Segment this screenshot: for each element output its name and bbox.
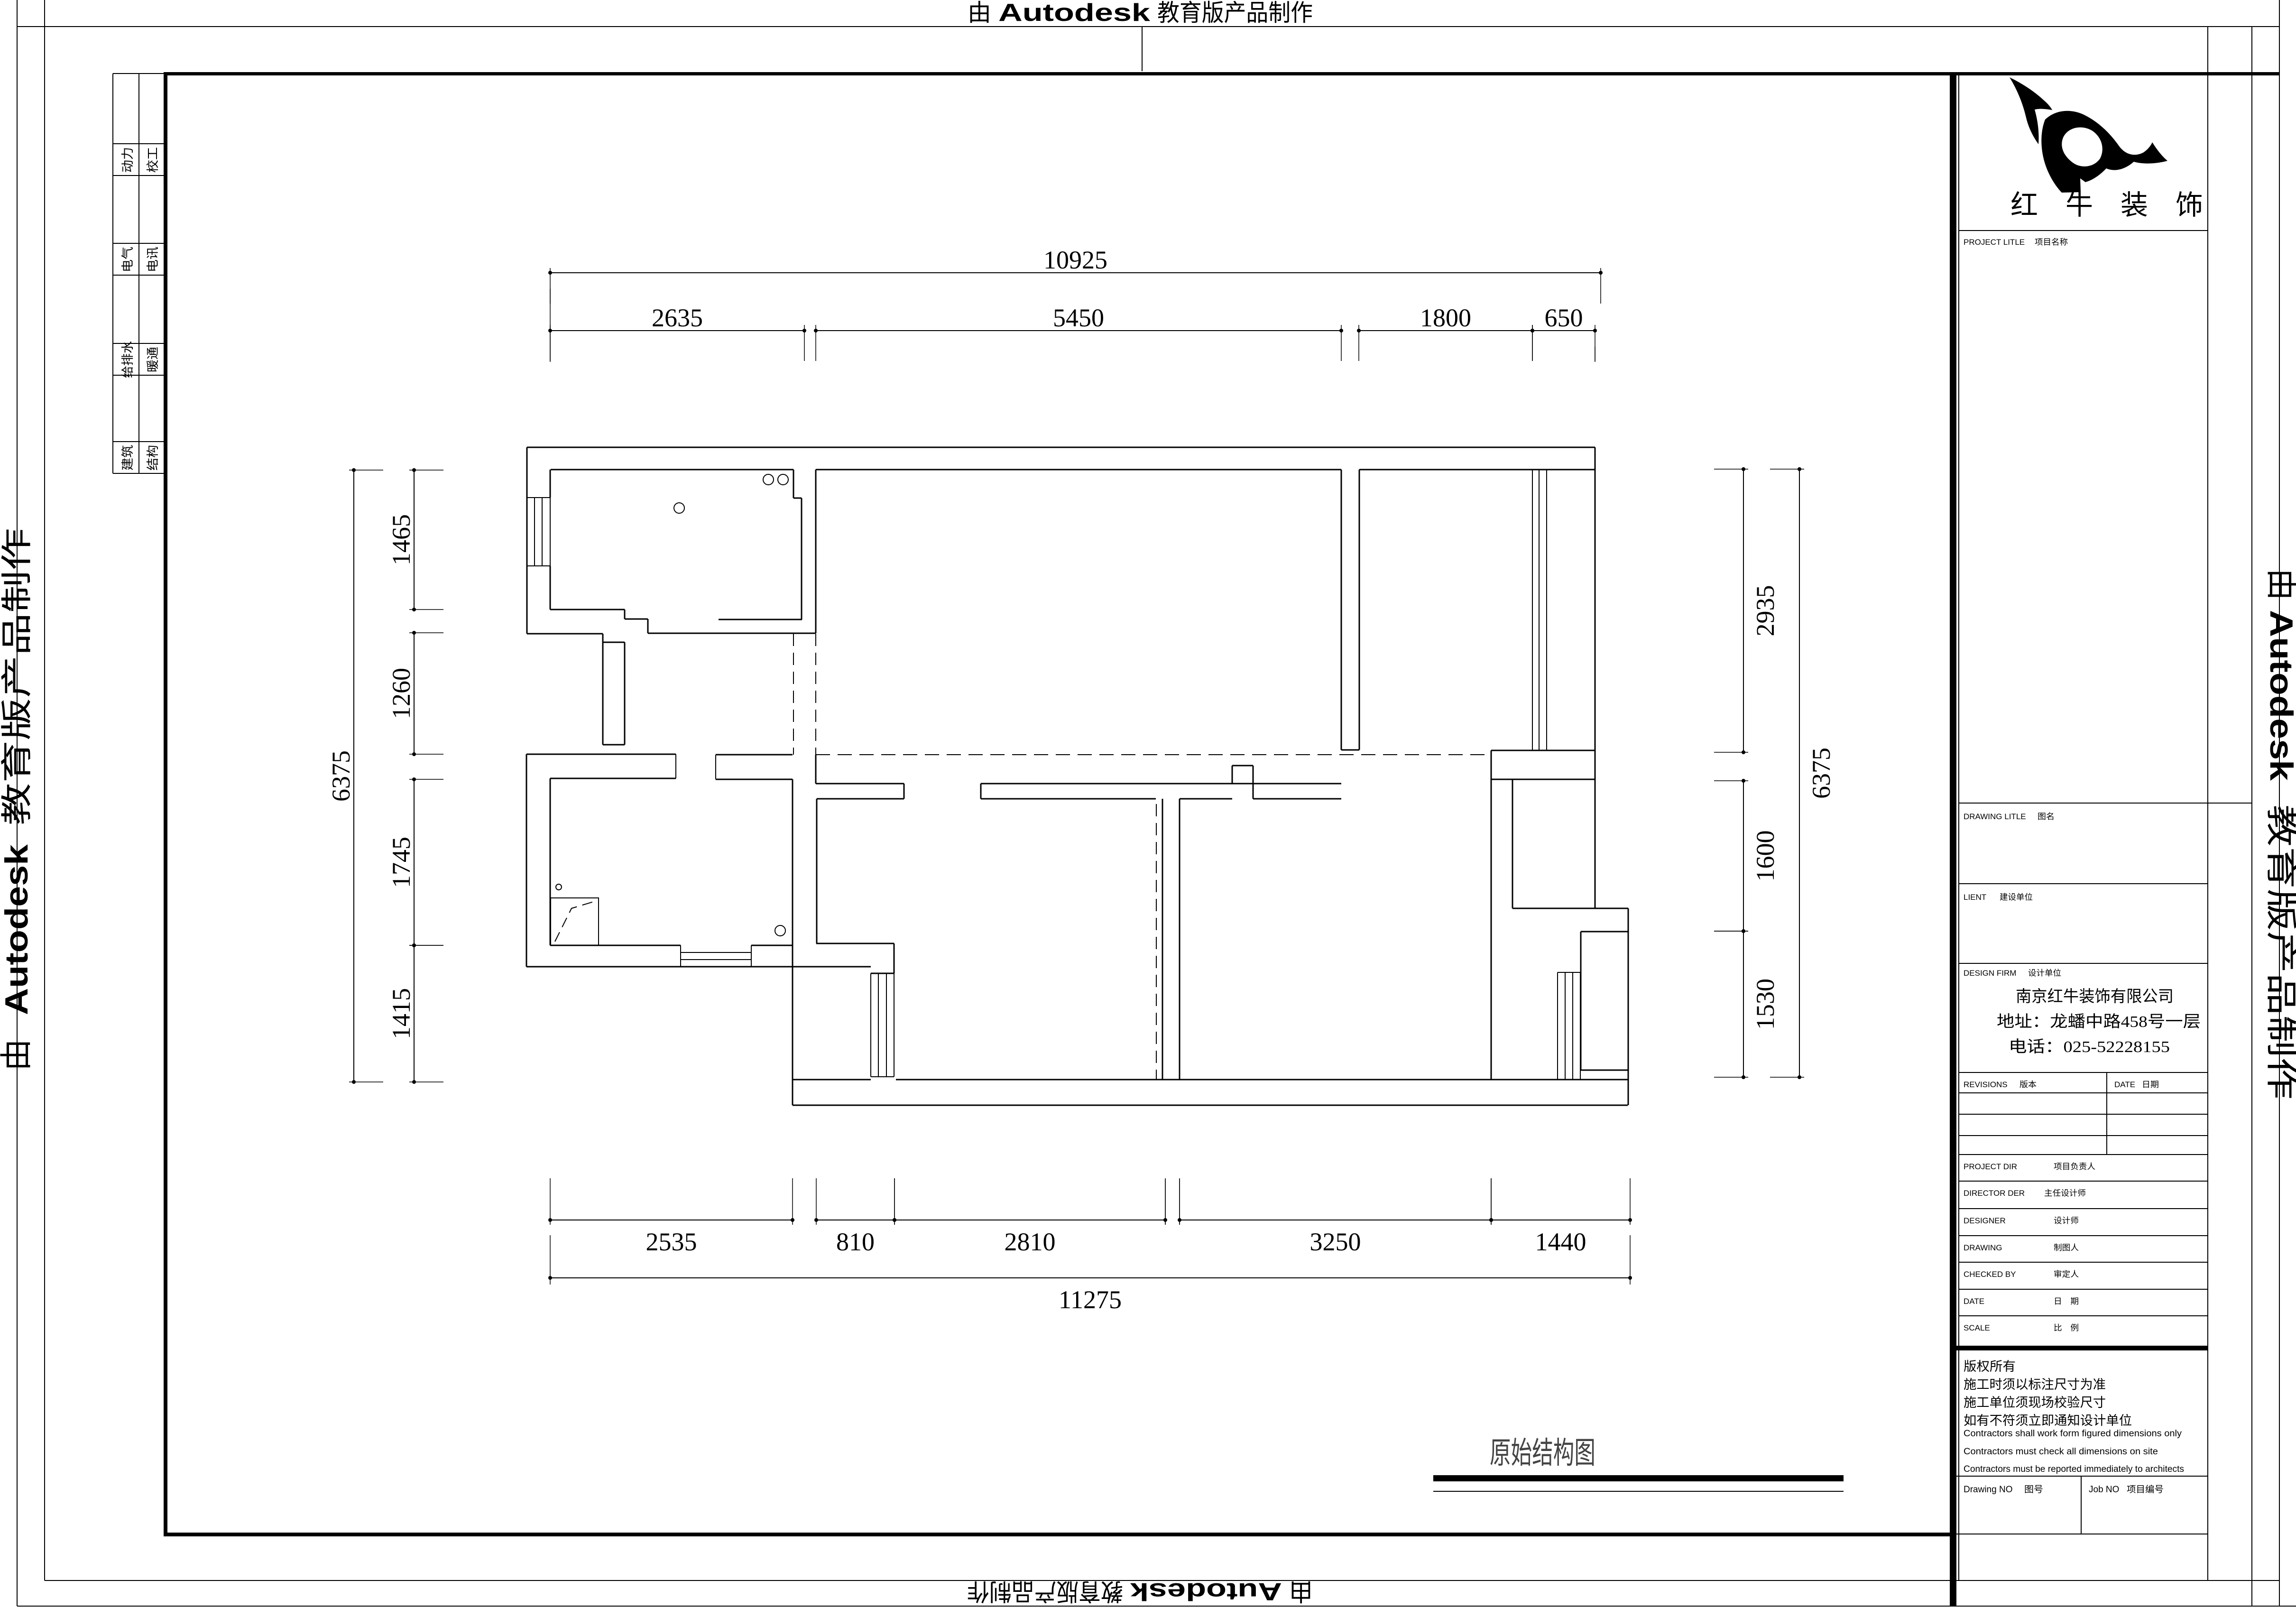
svg-text:图号: 图号 — [2024, 1485, 2043, 1495]
svg-text:电气: 电气 — [120, 247, 135, 272]
svg-text:项目编号: 项目编号 — [2127, 1484, 2164, 1495]
svg-text:设计单位: 设计单位 — [2028, 969, 2061, 978]
svg-text:校工: 校工 — [146, 147, 160, 173]
svg-text:2635: 2635 — [652, 304, 703, 332]
svg-text:Drawing NO: Drawing NO — [1964, 1485, 2012, 1495]
svg-text:CHECKED BY: CHECKED BY — [1964, 1270, 2016, 1279]
svg-text:1600: 1600 — [1751, 831, 1780, 882]
svg-text:10925: 10925 — [1043, 246, 1107, 274]
svg-text:3250: 3250 — [1310, 1228, 1361, 1256]
svg-text:Contractors must check all dim: Contractors must check all dimensions on… — [1964, 1447, 2158, 1457]
svg-text:版权所有: 版权所有 — [1964, 1359, 2016, 1374]
svg-text:Autodesk: Autodesk — [2263, 610, 2296, 781]
svg-text:DATE: DATE — [1964, 1297, 1984, 1306]
svg-text:红 牛 装 饰: 红 牛 装 饰 — [2010, 190, 2203, 221]
svg-text:1440: 1440 — [1535, 1228, 1586, 1256]
svg-text:DESIGNER: DESIGNER — [1964, 1216, 2006, 1225]
svg-text:6375: 6375 — [327, 750, 355, 802]
svg-text:主任设计师: 主任设计师 — [2044, 1189, 2086, 1198]
svg-text:1465: 1465 — [387, 514, 415, 565]
svg-text:如有不符须立即通知设计单位: 如有不符须立即通知设计单位 — [1964, 1414, 2132, 1428]
svg-text:Contractors must be reported i: Contractors must be reported immediately… — [1964, 1464, 2184, 1474]
svg-text:教育版产品制作: 教育版产品制作 — [1157, 0, 1313, 26]
svg-text:教育版产品制作: 教育版产品制作 — [0, 528, 34, 825]
svg-text:由: 由 — [968, 0, 991, 26]
svg-text:施工时须以标注尺寸为准: 施工时须以标注尺寸为准 — [1964, 1377, 2106, 1392]
svg-text:5450: 5450 — [1053, 304, 1104, 332]
svg-text:比 例: 比 例 — [2054, 1323, 2079, 1332]
svg-text:结构: 结构 — [146, 445, 160, 471]
svg-text:审定人: 审定人 — [2054, 1270, 2079, 1279]
svg-text:原始结构图: 原始结构图 — [1490, 1436, 1595, 1470]
svg-text:建设单位: 建设单位 — [2000, 893, 2033, 902]
svg-text:制图人: 制图人 — [2054, 1243, 2079, 1252]
svg-text:版本: 版本 — [2019, 1080, 2037, 1089]
svg-text:图名: 图名 — [2038, 812, 2055, 821]
svg-text:SCALE: SCALE — [1964, 1323, 1990, 1332]
svg-text:PROJECT DIR: PROJECT DIR — [1964, 1162, 2017, 1171]
svg-text:Contractors shall work form fi: Contractors shall work form figured dime… — [1964, 1429, 2182, 1439]
svg-text:1415: 1415 — [387, 988, 415, 1039]
svg-text:由: 由 — [0, 1039, 35, 1071]
svg-text:810: 810 — [836, 1228, 875, 1256]
svg-text:2535: 2535 — [646, 1228, 697, 1256]
svg-text:650: 650 — [1545, 304, 1583, 332]
svg-text:项目名称: 项目名称 — [2035, 238, 2068, 247]
svg-text:施工单位须现场校验尺寸: 施工单位须现场校验尺寸 — [1964, 1395, 2106, 1410]
svg-text:给排水: 给排水 — [120, 341, 135, 378]
svg-text:电讯: 电讯 — [146, 247, 160, 272]
svg-text:由: 由 — [1289, 1578, 1313, 1605]
svg-text:1800: 1800 — [1420, 304, 1471, 332]
svg-text:日期: 日期 — [2142, 1080, 2159, 1089]
svg-text:1260: 1260 — [387, 668, 415, 719]
svg-text:DATE: DATE — [2114, 1080, 2135, 1089]
svg-text:11275: 11275 — [1059, 1285, 1122, 1314]
svg-text:2935: 2935 — [1751, 585, 1780, 637]
svg-text:动力: 动力 — [120, 147, 135, 173]
svg-text:1745: 1745 — [387, 837, 415, 888]
svg-text:地址：龙蟠中路458号一层: 地址：龙蟠中路458号一层 — [1997, 1013, 2201, 1031]
svg-text:暖通: 暖通 — [146, 347, 160, 372]
svg-text:DESIGN FIRM: DESIGN FIRM — [1964, 969, 2016, 978]
svg-text:PROJECT LITLE: PROJECT LITLE — [1964, 238, 2025, 247]
svg-text:DRAWING LITLE: DRAWING LITLE — [1964, 812, 2026, 821]
svg-text:由: 由 — [2263, 568, 2296, 601]
svg-text:设计师: 设计师 — [2054, 1216, 2079, 1225]
svg-text:建筑: 建筑 — [120, 445, 135, 471]
svg-text:南京红牛装饰有限公司: 南京红牛装饰有限公司 — [2016, 988, 2174, 1006]
svg-text:教育版产品制作: 教育版产品制作 — [967, 1578, 1123, 1605]
svg-text:2810: 2810 — [1005, 1228, 1056, 1256]
svg-text:6375: 6375 — [1807, 748, 1835, 799]
svg-text:DIRECTOR DER: DIRECTOR DER — [1964, 1189, 2025, 1198]
svg-text:日 期: 日 期 — [2054, 1297, 2079, 1306]
svg-text:LIENT: LIENT — [1964, 893, 1986, 902]
svg-text:教育版产品制作: 教育版产品制作 — [2264, 804, 2296, 1100]
svg-text:Autodesk: Autodesk — [1130, 1578, 1282, 1605]
svg-text:Autodesk: Autodesk — [0, 844, 35, 1015]
svg-text:REVISIONS: REVISIONS — [1964, 1080, 2008, 1089]
svg-text:DRAWING: DRAWING — [1964, 1243, 2002, 1252]
svg-text:1530: 1530 — [1751, 979, 1780, 1030]
svg-text:Job NO: Job NO — [2089, 1485, 2119, 1495]
svg-text:电话：025-52228155: 电话：025-52228155 — [2009, 1038, 2170, 1056]
svg-text:Autodesk: Autodesk — [998, 0, 1150, 27]
svg-text:项目负责人: 项目负责人 — [2054, 1162, 2095, 1171]
